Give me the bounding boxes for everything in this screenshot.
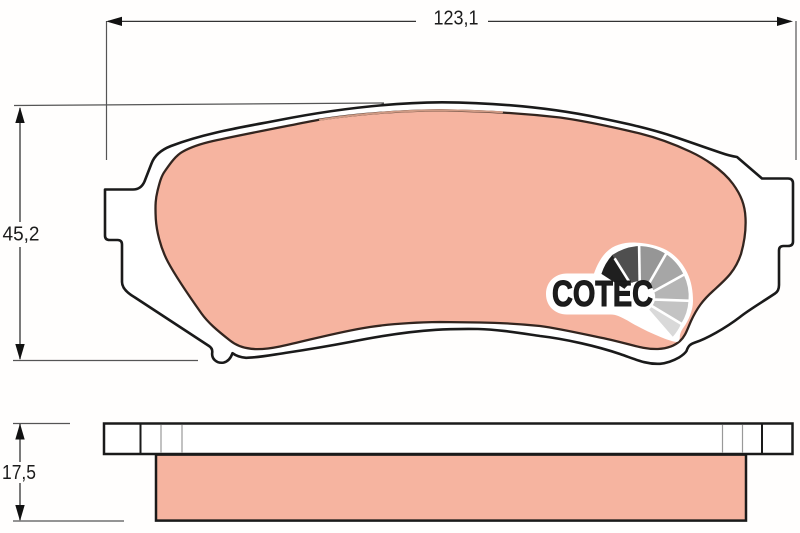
svg-text:123,1: 123,1 bbox=[434, 7, 479, 30]
svg-text:45,2: 45,2 bbox=[3, 223, 40, 246]
svg-text:17,5: 17,5 bbox=[2, 461, 36, 484]
svg-text:COTEC: COTEC bbox=[552, 273, 653, 314]
